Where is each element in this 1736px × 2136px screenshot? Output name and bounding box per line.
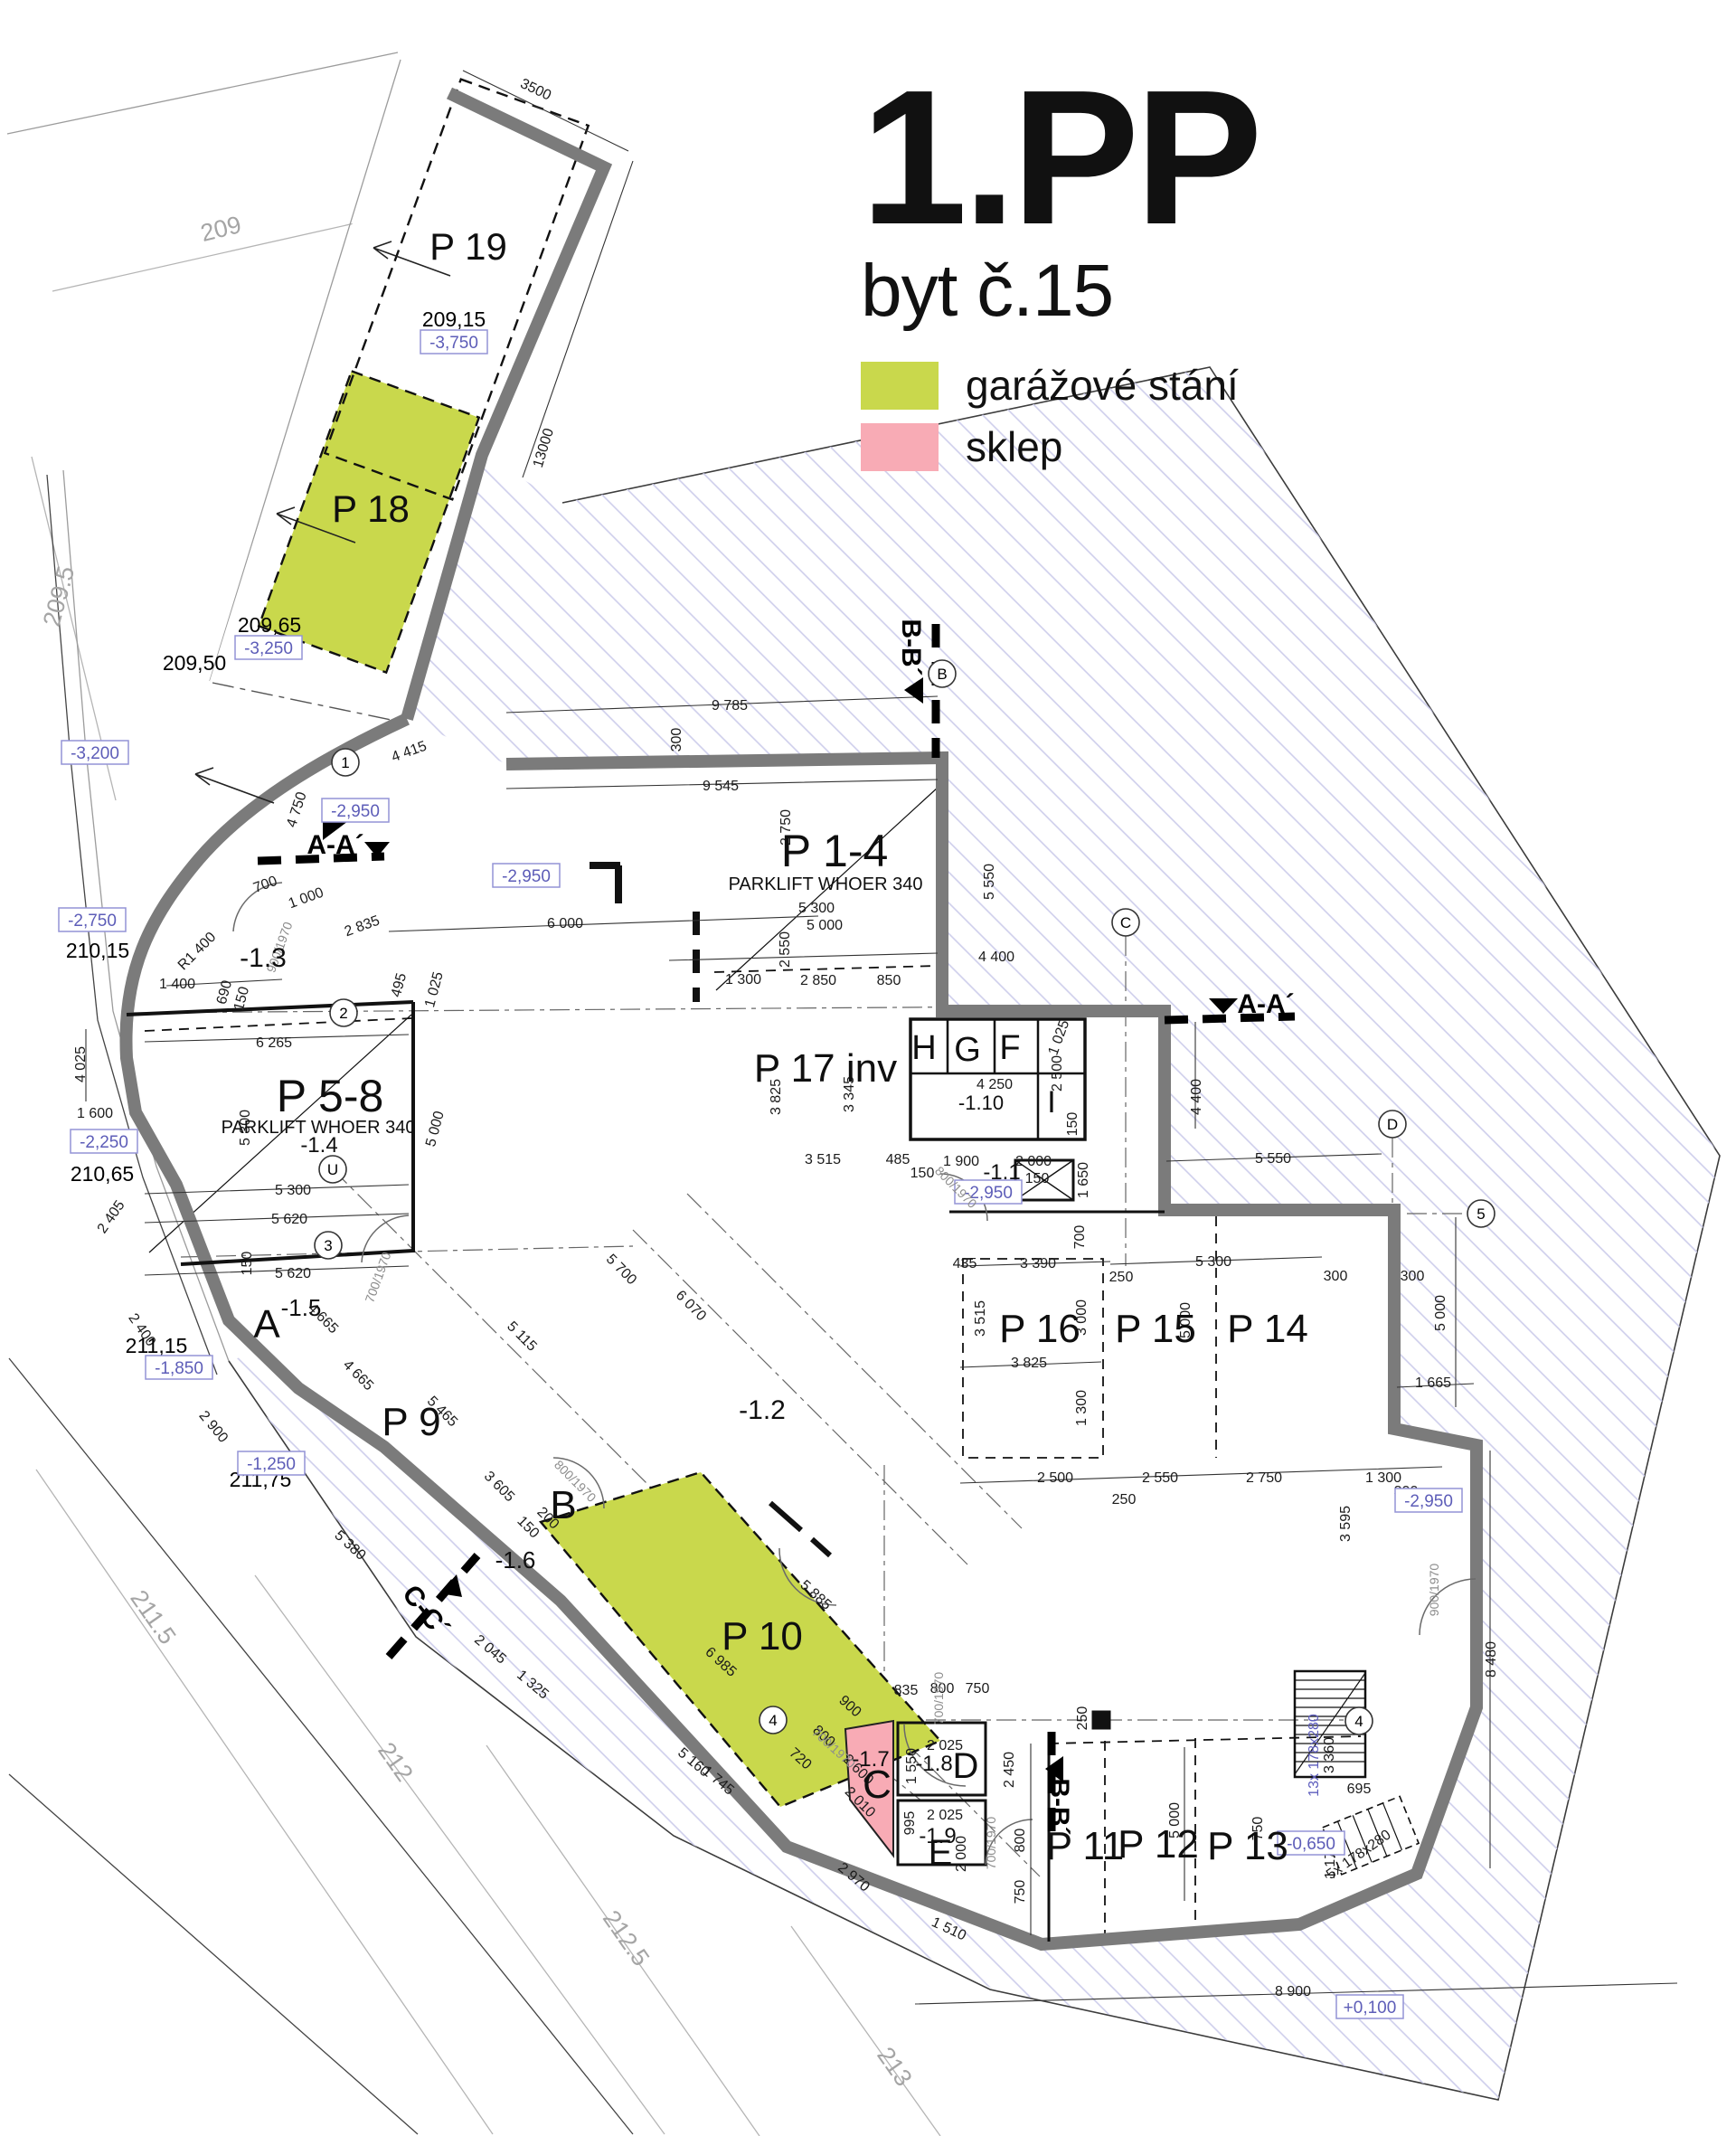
rooms-item: -1.10 [958,1092,1004,1114]
svg-text:A: A [253,1302,280,1347]
levels-boxed-item: +0,100 [1336,1995,1403,2018]
svg-text:209,50: 209,50 [163,651,226,675]
svg-text:-1.2: -1.2 [739,1395,786,1425]
svg-text:150: 150 [1065,1112,1080,1137]
floor-plan-page: 3500130009 7853009 5452 7505 3005 0002 5… [0,0,1736,2136]
dims-item: 150 [1025,1171,1050,1186]
svg-text:5 000: 5 000 [807,918,843,933]
dims-item: 250 [1112,1492,1137,1507]
dims-item: 835 [894,1683,919,1698]
svg-text:700/1970: 700/1970 [931,1672,946,1725]
svg-text:2 550: 2 550 [1142,1470,1178,1486]
svg-text:I: I [1047,1085,1055,1120]
rooms-item: H [911,1029,936,1067]
svg-text:750: 750 [1013,1880,1028,1904]
dims-item: 1 400 [159,977,195,992]
rooms-item: -1.2 [739,1395,786,1425]
svg-text:995: 995 [902,1811,918,1836]
legend-row-garage: garážové stání [861,361,1439,410]
dims-item: 750 [1013,1880,1028,1904]
doors-item: 700/1970 [984,1817,998,1870]
dims-item: 250 [1075,1706,1090,1731]
bubbles-item: 4 [759,1706,787,1734]
bubbles-item: 5 [1467,1200,1495,1227]
dims-item: 850 [877,973,901,988]
contours-item: 212.5 [598,1905,655,1971]
svg-text:1: 1 [341,754,349,771]
dims-item: 5 620 [271,1212,307,1227]
svg-text:2 500: 2 500 [1037,1470,1073,1486]
dims-item: 695 [1347,1782,1372,1797]
dims-item: 6 000 [547,916,583,931]
svg-text:-1.3: -1.3 [240,943,287,973]
dims-item: 1 650 [1076,1162,1091,1198]
svg-text:-2,950: -2,950 [331,802,380,821]
svg-text:210,65: 210,65 [71,1162,134,1186]
svg-text:4 400: 4 400 [978,950,1014,965]
svg-text:H: H [911,1029,936,1067]
sections-item: B-B´ [1044,1778,1074,1835]
svg-text:-1.10: -1.10 [958,1092,1004,1114]
dims-item: 150 [240,1252,255,1276]
svg-text:-2,750: -2,750 [68,912,117,931]
svg-text:700: 700 [1072,1225,1088,1250]
svg-text:6 265: 6 265 [256,1035,292,1051]
subs-item: PARKLIFT WHOER 340 [729,874,923,894]
bubbles-item: U [319,1156,346,1183]
dims-item: 995 [902,1811,918,1836]
dims-item: 4 400 [1189,1079,1204,1115]
dims-item: 300 [1401,1269,1425,1284]
rooms-item: P 17 inv [754,1046,897,1091]
svg-text:P 16: P 16 [999,1307,1080,1351]
svg-text:3 515: 3 515 [973,1300,988,1337]
dims-item: 3 515 [973,1300,988,1337]
svg-text:D: D [1387,1116,1398,1133]
dims-item: 2 850 [800,973,836,988]
bubbles-item: 4 [1345,1707,1373,1734]
dims-item: 5 300 [1195,1254,1231,1270]
dims-item: 8 900 [1275,1984,1311,1999]
dims-item: 2 025 [927,1808,963,1823]
dims-item: 700 [1072,1225,1088,1250]
svg-text:800: 800 [1013,1829,1028,1853]
svg-text:5 620: 5 620 [271,1212,307,1227]
svg-text:3 515: 3 515 [805,1152,841,1167]
svg-text:P 13: P 13 [1207,1824,1288,1868]
dims-item: 300 [669,728,684,752]
svg-text:P 14: P 14 [1227,1307,1308,1351]
svg-text:2: 2 [339,1005,347,1022]
dims-item: 5 000 [1433,1295,1448,1331]
svg-text:B-B´: B-B´ [896,619,926,676]
svg-text:-3,200: -3,200 [71,744,119,763]
svg-text:P 1-4: P 1-4 [781,826,889,876]
svg-text:-1.5: -1.5 [281,1294,322,1321]
rooms-item: P 5-8 [277,1071,384,1121]
dims-item: 800 [1013,1829,1028,1853]
svg-text:5 550: 5 550 [982,864,997,900]
levels-boxed-item: -3,200 [61,741,128,764]
svg-text:3: 3 [324,1237,332,1254]
rooms-item: P 1-4 [781,826,889,876]
svg-text:1 665: 1 665 [1415,1375,1451,1391]
svg-text:3 360: 3 360 [1322,1737,1337,1773]
dims-item: 1 300 [725,972,761,988]
svg-text:2 405: 2 405 [95,1198,128,1237]
rooms-item: P 12 [1118,1822,1199,1867]
dims-item: 3 595 [1338,1506,1354,1542]
legend-row-cellar: sklep [861,422,1439,471]
dims-item: 2 405 [95,1198,128,1237]
svg-text:3 825: 3 825 [1011,1356,1047,1371]
dims-item: 5 620 [275,1266,311,1281]
svg-text:5 550: 5 550 [1255,1151,1291,1167]
contours-item: 209 [198,211,244,247]
svg-text:-1.7: -1.7 [852,1747,889,1772]
svg-text:212.5: 212.5 [598,1905,655,1971]
svg-text:5 300: 5 300 [275,1183,311,1198]
legend-label-garage: garážové stání [966,361,1239,410]
svg-text:4: 4 [769,1712,777,1729]
svg-text:1 400: 1 400 [159,977,195,992]
dims-item: 5 550 [982,864,997,900]
levels-boxed-item: -3,750 [420,330,487,354]
svg-text:G: G [954,1031,981,1069]
svg-text:750: 750 [966,1681,990,1697]
bubbles-item: C [1112,909,1139,936]
dims-item: 8 480 [1484,1641,1499,1678]
doors-item: 700/1970 [931,1672,946,1725]
svg-text:1 300: 1 300 [1074,1390,1090,1426]
levels-boxed-item: -1,250 [238,1451,305,1475]
svg-text:5 620: 5 620 [275,1266,311,1281]
svg-text:D: D [953,1746,979,1786]
levels-plain-item: 209,65 [238,613,301,637]
dims-item: 3 360 [1322,1737,1337,1773]
svg-text:-0,650: -0,650 [1287,1835,1335,1854]
svg-text:2 900: 2 900 [195,1408,231,1446]
dims-item: 13000 [531,427,557,470]
svg-text:-2,250: -2,250 [80,1133,128,1152]
svg-text:300: 300 [1324,1269,1348,1284]
dims-item: 1 665 [1415,1375,1451,1391]
svg-text:2 000: 2 000 [1015,1154,1052,1169]
doors-item: 900/1970 [1427,1564,1441,1617]
levels-plain-item: 209,50 [163,651,226,675]
svg-text:1 300: 1 300 [725,972,761,988]
dims-blue-item: 13x 178x280 [1307,1714,1322,1797]
svg-text:B-B´: B-B´ [1044,1778,1074,1835]
svg-text:-1.8: -1.8 [915,1752,952,1776]
svg-text:150: 150 [1025,1171,1050,1186]
dims-item: 1 300 [1074,1390,1090,1426]
levels-plain-item: 210,65 [71,1162,134,1186]
svg-text:-1.6: -1.6 [495,1546,536,1574]
levels-plain-item: 209,15 [422,307,486,331]
svg-text:5 300: 5 300 [1195,1254,1231,1270]
rooms-item: P 14 [1227,1307,1308,1351]
bubbles-item: 3 [315,1232,342,1259]
levels-boxed-item: -2,950 [1395,1489,1462,1512]
cellar-color-swatch [861,423,939,471]
svg-text:2 850: 2 850 [800,973,836,988]
svg-text:5 000: 5 000 [1433,1295,1448,1331]
dims-item: 3 515 [805,1152,841,1167]
levels-boxed-item: -2,250 [71,1129,137,1153]
svg-text:4: 4 [1354,1713,1363,1730]
svg-text:A-A´: A-A´ [1237,989,1294,1019]
rooms-item: P 19 [429,225,507,268]
svg-text:8 480: 8 480 [1484,1641,1499,1678]
dims-item: 5 550 [1255,1151,1291,1167]
svg-text:700/1970: 700/1970 [984,1817,998,1870]
svg-text:900/1970: 900/1970 [1427,1564,1441,1617]
rooms-item: B [550,1483,576,1527]
svg-text:300: 300 [669,728,684,752]
svg-text:8 900: 8 900 [1275,1984,1311,1999]
svg-text:300: 300 [1401,1269,1425,1284]
dims-item: 5 000 [807,918,843,933]
svg-text:B: B [550,1483,576,1527]
rooms-item: -1.6 [495,1546,536,1574]
dims-item: 2 550 [778,931,793,968]
svg-text:+0,100: +0,100 [1344,1999,1397,2018]
svg-text:P 10: P 10 [722,1614,803,1659]
floor-title: 1.PP [861,69,1439,245]
svg-text:-2,950: -2,950 [502,867,551,886]
dims-item: 4 025 [73,1046,89,1082]
bubbles-item: 1 [332,749,359,776]
rooms-item: P 9 [382,1400,440,1444]
dims-item: 2 000 [1015,1154,1052,1169]
svg-text:3 390: 3 390 [1020,1256,1056,1271]
dims-item: 150 [910,1166,935,1181]
svg-text:-3,750: -3,750 [429,334,478,353]
levels-boxed-item: -2,950 [493,864,560,887]
svg-text:-3,250: -3,250 [244,639,293,658]
svg-text:209,65: 209,65 [238,613,301,637]
svg-text:B: B [937,666,947,683]
svg-text:-1,850: -1,850 [155,1359,203,1378]
dims-item: 9 785 [712,698,748,714]
svg-text:P 12: P 12 [1118,1822,1199,1867]
svg-text:P 19: P 19 [429,225,507,268]
svg-text:150: 150 [910,1166,935,1181]
svg-text:150: 150 [240,1252,255,1276]
dims-item: 5 300 [798,901,835,916]
subs-item: PARKLIFT WHOER 340 [222,1118,416,1138]
dims-item: 435 [953,1256,977,1271]
dims-item: 2 900 [195,1408,231,1446]
sections-item: A-A´ [1237,989,1294,1019]
levels-boxed-item: -1,850 [146,1356,212,1379]
svg-text:-2,950: -2,950 [1404,1492,1453,1511]
svg-text:13000: 13000 [531,427,557,470]
dims-item: 3 390 [1020,1256,1056,1271]
svg-text:211.5: 211.5 [125,1585,181,1649]
dims-item: 9 545 [703,779,739,794]
svg-text:F: F [999,1029,1020,1067]
svg-text:4 400: 4 400 [1189,1079,1204,1115]
svg-text:P 18: P 18 [332,487,410,530]
svg-text:2 450: 2 450 [1002,1752,1017,1788]
svg-text:2 025: 2 025 [927,1808,963,1823]
rooms-item: P 13 [1207,1824,1288,1868]
contours-item: 211.5 [125,1585,181,1649]
dims-item: 4 250 [976,1077,1013,1092]
legend: garážové stání sklep [861,361,1439,471]
rooms-item: F [999,1029,1020,1067]
svg-text:210,15: 210,15 [66,939,129,962]
rooms-item: P 15 [1115,1307,1196,1351]
rooms-item: -1.3 [240,943,287,973]
svg-text:13x 178x280: 13x 178x280 [1307,1714,1322,1797]
svg-text:A-A´: A-A´ [307,830,363,860]
svg-text:C: C [1120,914,1131,931]
svg-text:-1,250: -1,250 [247,1455,296,1474]
svg-text:2 750: 2 750 [1246,1470,1282,1486]
svg-text:209: 209 [198,211,244,247]
svg-text:835: 835 [894,1683,919,1698]
bubbles-item: B [929,660,956,687]
dims-item: 2 500 [1037,1470,1073,1486]
svg-text:209,15: 209,15 [422,307,486,331]
svg-text:P 5-8: P 5-8 [277,1071,384,1121]
svg-text:P 9: P 9 [382,1400,440,1444]
svg-text:211,15: 211,15 [126,1334,188,1357]
svg-text:485: 485 [886,1152,910,1167]
rooms-item: -1.9 [919,1824,956,1848]
levels-plain-item: 211,15 [126,1334,188,1357]
svg-text:3 595: 3 595 [1338,1506,1354,1542]
svg-text:P 17 inv: P 17 inv [754,1046,897,1091]
svg-text:435: 435 [953,1256,977,1271]
garage-color-swatch [861,362,939,410]
dims-item: 750 [966,1681,990,1697]
svg-text:-1.9: -1.9 [919,1824,956,1848]
sections-item: A-A´ [307,830,363,860]
rooms-item: D [953,1746,979,1786]
rooms-item: G [954,1031,981,1069]
bubbles-item: 2 [330,999,357,1026]
svg-text:695: 695 [1347,1782,1372,1797]
rooms-item: -1.7 [852,1747,889,1772]
dims-item: 4 400 [978,950,1014,965]
svg-text:250: 250 [1109,1270,1134,1285]
svg-text:1 650: 1 650 [1076,1162,1091,1198]
levels-boxed-item: -2,950 [322,799,389,822]
svg-text:PARKLIFT WHOER 340: PARKLIFT WHOER 340 [222,1118,416,1138]
svg-text:5: 5 [1477,1205,1485,1223]
bubbles-item: D [1379,1111,1406,1138]
sections-item: B-B´ [896,619,926,676]
levels-boxed-item: -2,750 [59,908,126,931]
rooms-item: -1.5 [281,1294,322,1321]
dims-item: 2 750 [1246,1470,1282,1486]
rooms-item: P 10 [722,1614,803,1659]
svg-text:850: 850 [877,973,901,988]
dims-item: 150 [1065,1112,1080,1137]
svg-text:9 785: 9 785 [712,698,748,714]
svg-text:1 900: 1 900 [943,1154,979,1169]
dims-item: 300 [1324,1269,1348,1284]
svg-text:2 550: 2 550 [778,931,793,968]
svg-text:-1.1: -1.1 [983,1160,1020,1185]
dims-item: 1 900 [943,1154,979,1169]
dims-item: 485 [886,1152,910,1167]
rooms-item: -1.1 [983,1160,1020,1185]
rooms-item: P 16 [999,1307,1080,1351]
rooms-item: -1.8 [915,1752,952,1776]
rooms-item: P 18 [332,487,410,530]
svg-text:U: U [327,1161,338,1178]
dims-item: 1 600 [77,1106,113,1121]
levels-boxed-item: -3,250 [235,636,302,659]
dims-item: 3 825 [1011,1356,1047,1371]
dims-item: 250 [1109,1270,1134,1285]
svg-text:1 600: 1 600 [77,1106,113,1121]
svg-text:250: 250 [1112,1492,1137,1507]
dims-item: 2 550 [1142,1470,1178,1486]
svg-text:9 545: 9 545 [703,779,739,794]
svg-text:5 300: 5 300 [798,901,835,916]
dims-item: 6 265 [256,1035,292,1051]
svg-text:4 025: 4 025 [73,1046,89,1082]
dims-item: 5 300 [275,1183,311,1198]
svg-text:4 250: 4 250 [976,1077,1013,1092]
svg-text:6 000: 6 000 [547,916,583,931]
rooms-item: A [253,1302,280,1347]
title-block: 1.PP byt č.15 garážové stání sklep [861,69,1439,484]
dims-item: 2 450 [1002,1752,1017,1788]
legend-label-cellar: sklep [966,422,1062,471]
svg-text:P 15: P 15 [1115,1307,1196,1351]
svg-text:250: 250 [1075,1706,1090,1731]
rooms-item: I [1047,1085,1055,1120]
svg-text:PARKLIFT WHOER 340: PARKLIFT WHOER 340 [729,874,923,894]
levels-plain-item: 210,15 [66,939,129,962]
